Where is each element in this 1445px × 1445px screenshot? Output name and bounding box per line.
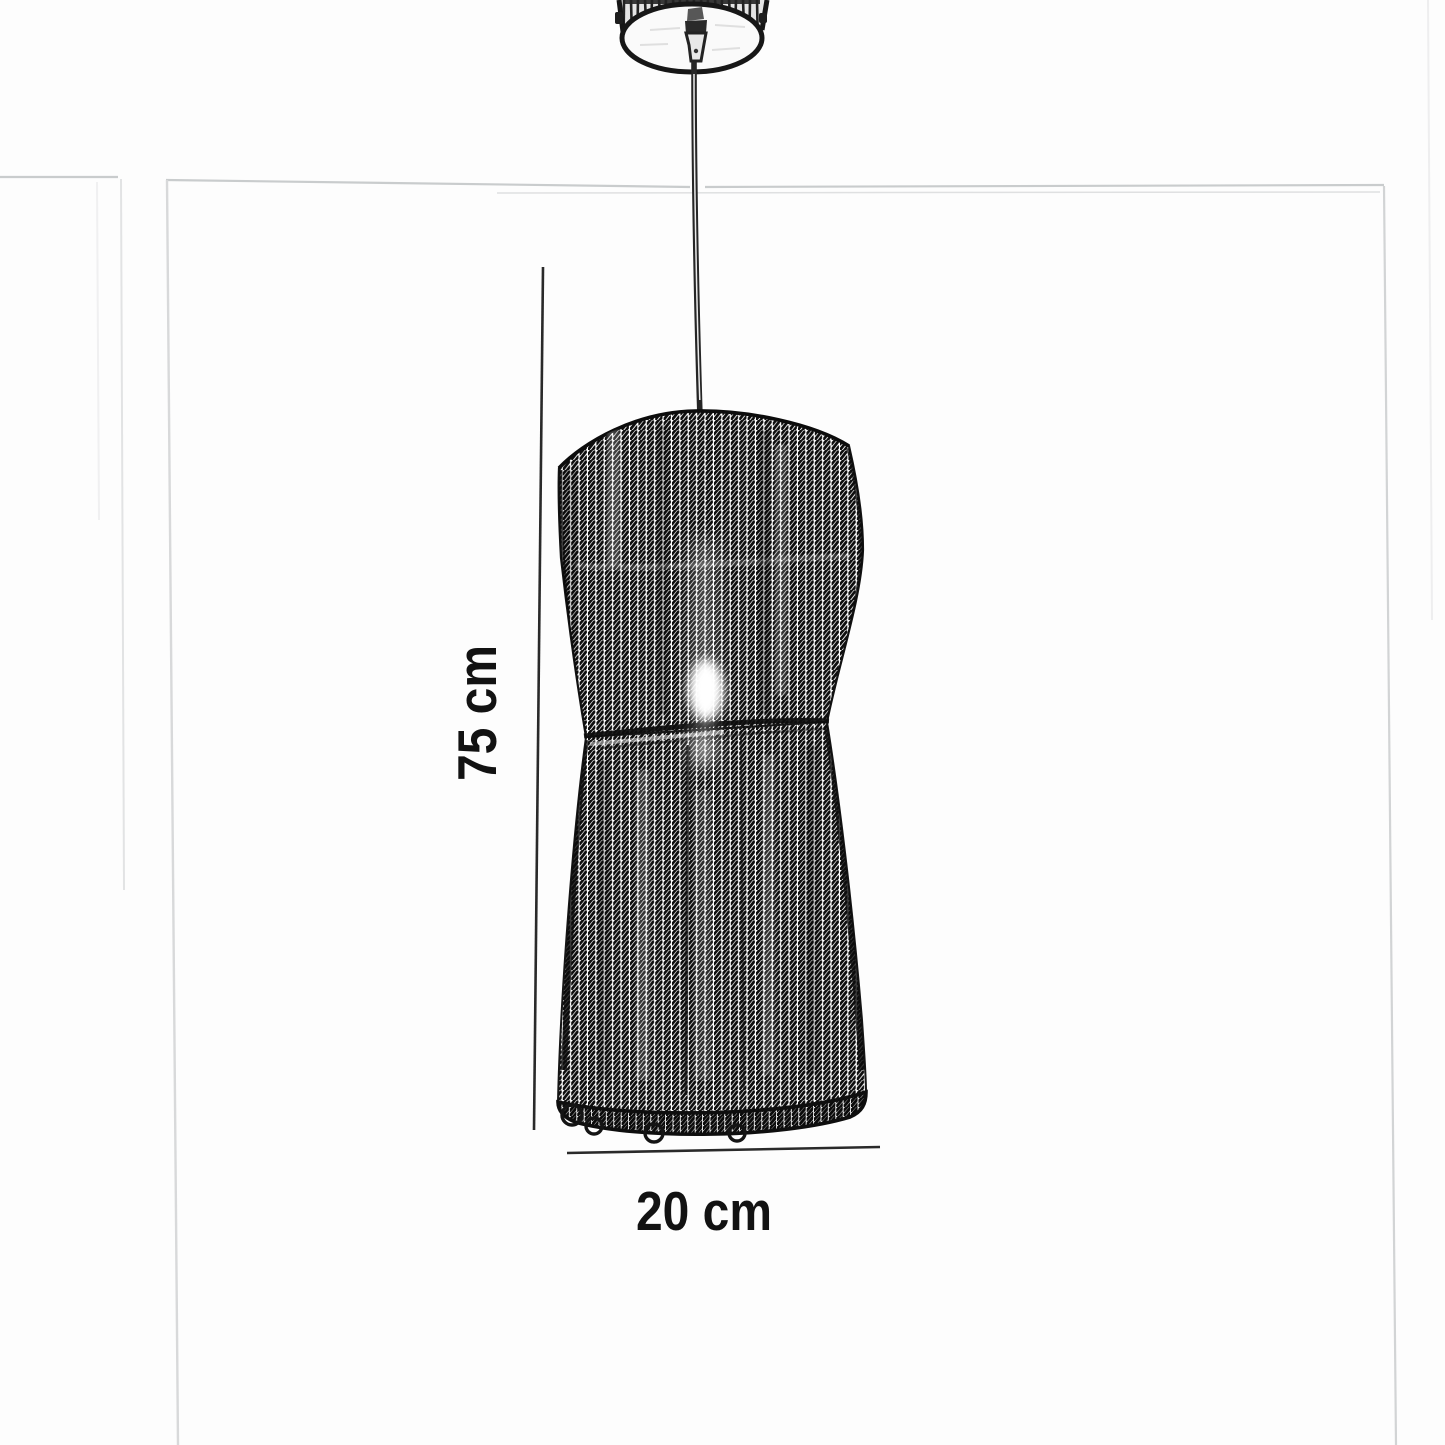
svg-text:20 cm: 20 cm: [636, 1180, 772, 1242]
svg-text:75 cm: 75 cm: [446, 645, 508, 781]
